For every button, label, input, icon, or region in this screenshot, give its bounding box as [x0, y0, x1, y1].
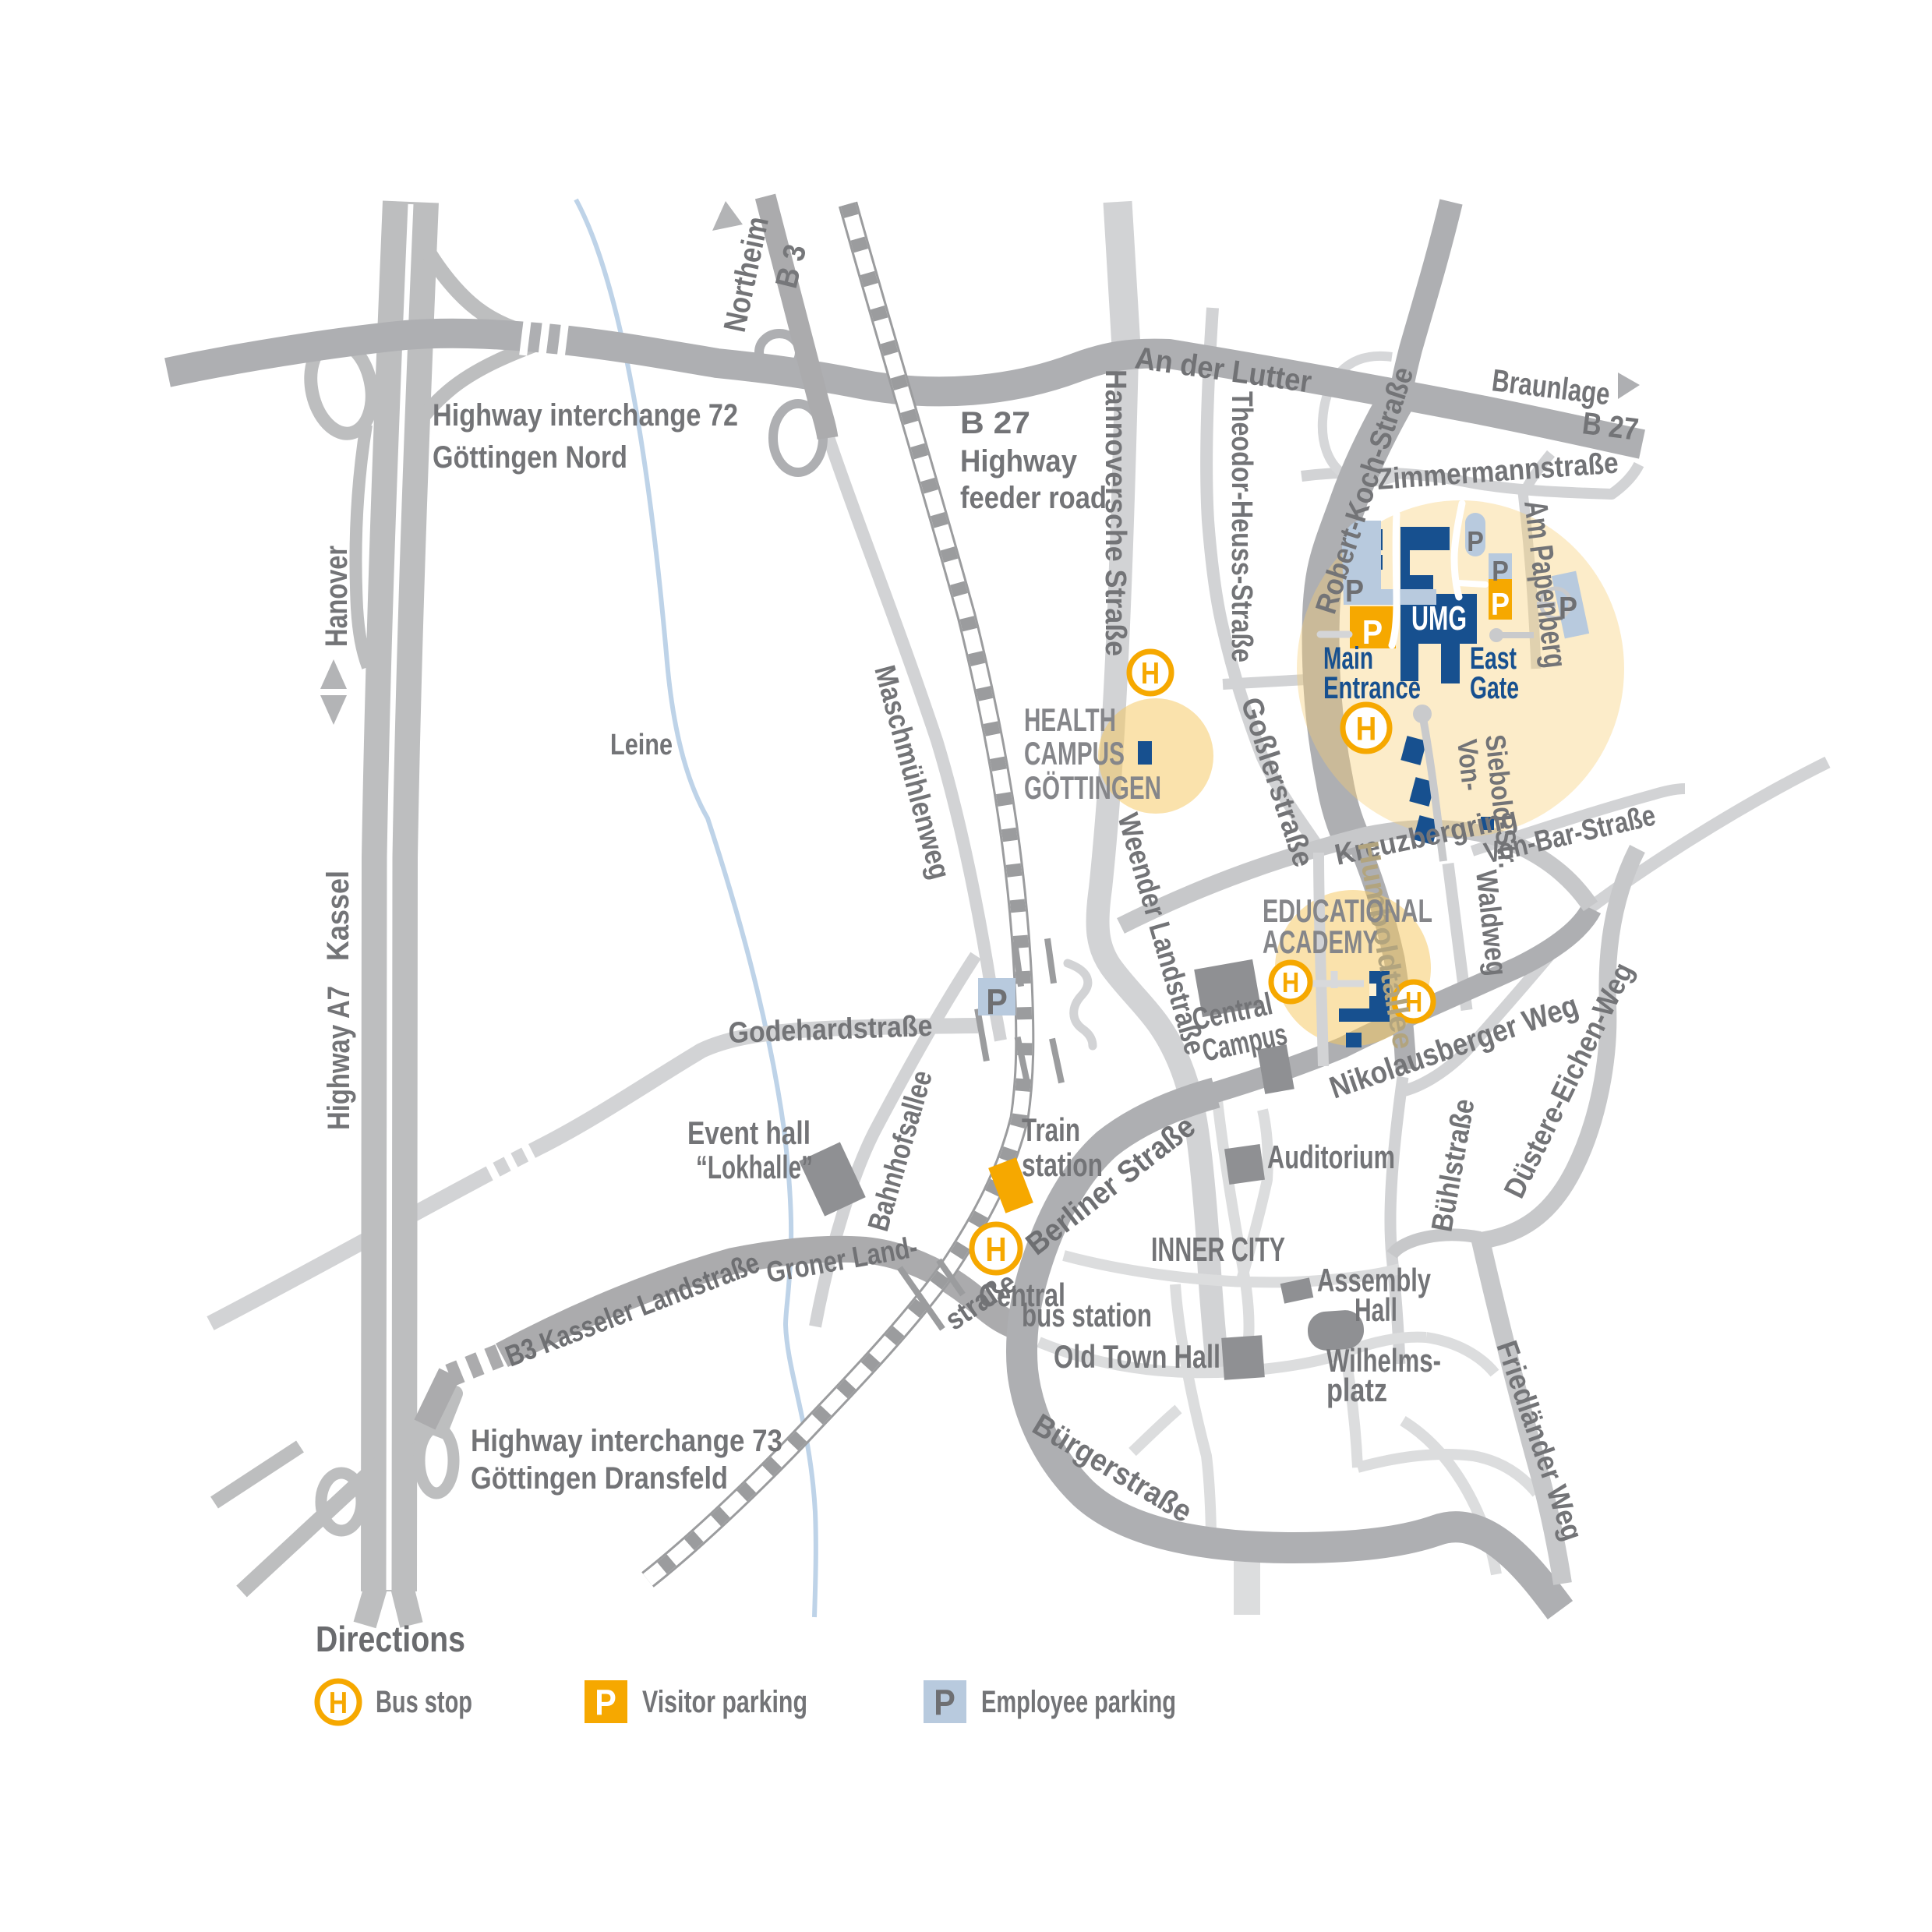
- svg-text:Employee parking: Employee parking: [981, 1685, 1176, 1719]
- svg-text:Hall: Hall: [1355, 1291, 1397, 1328]
- svg-text:Kassel: Kassel: [321, 871, 355, 961]
- svg-text:ACADEMY: ACADEMY: [1263, 924, 1378, 960]
- svg-text:Theodor-Heuss-Straße: Theodor-Heuss-Straße: [1225, 391, 1258, 662]
- svg-text:Gate: Gate: [1470, 671, 1519, 705]
- svg-text:Göttingen Nord: Göttingen Nord: [433, 440, 627, 475]
- svg-text:Highway interchange 72: Highway interchange 72: [433, 398, 738, 433]
- svg-text:P: P: [1467, 525, 1484, 557]
- svg-text:Entrance: Entrance: [1323, 671, 1421, 705]
- svg-text:Bus stop: Bus stop: [376, 1685, 472, 1719]
- svg-text:Visitor parking: Visitor parking: [642, 1685, 807, 1719]
- svg-text:P: P: [1491, 587, 1510, 621]
- svg-text:Auditorium: Auditorium: [1267, 1139, 1395, 1175]
- svg-text:Leine: Leine: [610, 729, 673, 761]
- svg-text:B 27: B 27: [960, 406, 1030, 440]
- svg-text:GÖTTINGEN: GÖTTINGEN: [1024, 769, 1161, 806]
- svg-text:H: H: [1356, 710, 1377, 747]
- svg-text:Directions: Directions: [316, 1619, 465, 1659]
- svg-text:B 27: B 27: [1581, 406, 1641, 447]
- svg-text:Highway interchange 73: Highway interchange 73: [471, 1424, 782, 1458]
- svg-text:platz: platz: [1326, 1372, 1387, 1408]
- svg-text:H: H: [1141, 657, 1160, 691]
- svg-text:Highway A7: Highway A7: [322, 986, 356, 1130]
- svg-text:H: H: [1282, 966, 1299, 998]
- svg-text:bus station: bus station: [1022, 1297, 1152, 1333]
- svg-text:feeder road: feeder road: [960, 481, 1107, 515]
- svg-text:UMG: UMG: [1411, 599, 1467, 638]
- svg-text:Hanover: Hanover: [320, 546, 354, 647]
- svg-text:Train: Train: [1022, 1111, 1080, 1148]
- svg-text:“Lokhalle”: “Lokhalle”: [696, 1149, 813, 1185]
- svg-text:H: H: [985, 1231, 1006, 1269]
- svg-text:Old Town Hall: Old Town Hall: [1054, 1338, 1220, 1375]
- svg-text:P: P: [595, 1683, 616, 1723]
- svg-text:H: H: [329, 1687, 348, 1720]
- svg-text:Hannoversche Straße: Hannoversche Straße: [1099, 369, 1132, 656]
- svg-text:INNER CITY: INNER CITY: [1151, 1231, 1285, 1269]
- svg-text:Göttingen Dransfeld: Göttingen Dransfeld: [471, 1461, 728, 1496]
- svg-text:P: P: [986, 982, 1008, 1023]
- svg-text:CAMPUS: CAMPUS: [1024, 735, 1125, 772]
- svg-text:HEALTH: HEALTH: [1024, 701, 1116, 738]
- svg-text:Event hall: Event hall: [687, 1114, 811, 1151]
- svg-text:station: station: [1022, 1146, 1103, 1183]
- svg-text:P: P: [1492, 555, 1509, 587]
- svg-text:Highway: Highway: [960, 444, 1078, 479]
- svg-text:P: P: [934, 1683, 955, 1723]
